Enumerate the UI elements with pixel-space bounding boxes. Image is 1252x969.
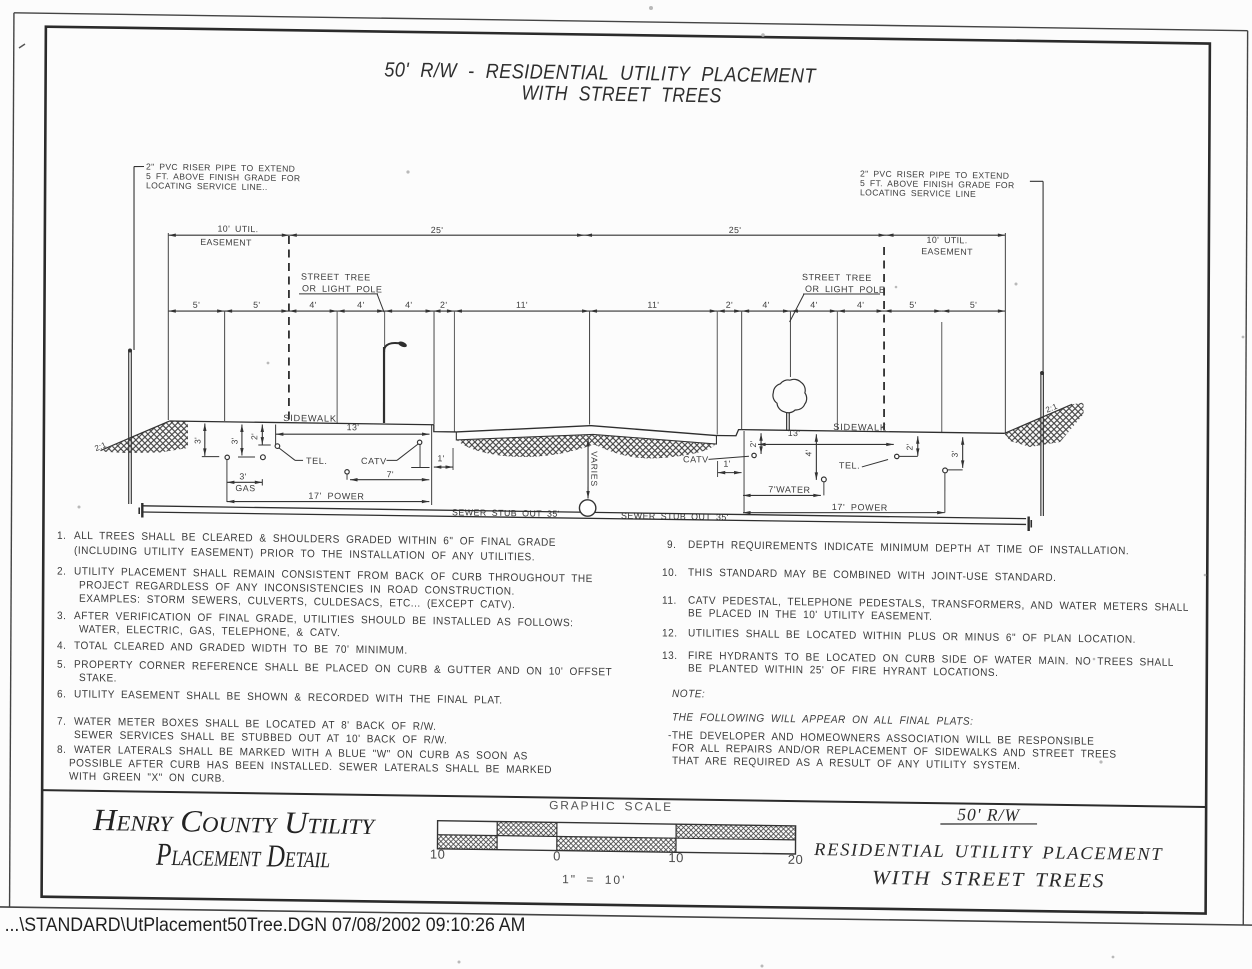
- svg-text:3': 3': [950, 450, 960, 457]
- svg-text:7'WATER: 7'WATER: [768, 484, 810, 495]
- svg-text:12.: 12.: [662, 628, 678, 640]
- svg-text:2.: 2.: [57, 566, 66, 578]
- svg-text:25': 25': [729, 225, 742, 235]
- svg-text:50' R/W: 50' R/W: [957, 804, 1020, 825]
- svg-text:2': 2': [748, 440, 758, 447]
- svg-text:25': 25': [431, 225, 444, 235]
- svg-text:10' UTIL.: 10' UTIL.: [218, 224, 259, 235]
- svg-text:EASEMENT: EASEMENT: [200, 237, 252, 248]
- svg-text:4': 4': [762, 300, 769, 310]
- svg-text:3': 3': [230, 437, 240, 444]
- svg-text:10.: 10.: [662, 567, 678, 579]
- svg-text:1': 1': [437, 453, 444, 463]
- svg-text:WITH STREET TREES: WITH STREET TREES: [521, 82, 721, 107]
- svg-text:13': 13': [788, 428, 801, 438]
- svg-text:4': 4': [309, 300, 316, 310]
- svg-text:13.: 13.: [662, 651, 678, 663]
- svg-text:4': 4': [857, 300, 864, 310]
- svg-text:GAS: GAS: [235, 483, 255, 493]
- svg-text:1': 1': [723, 459, 730, 469]
- svg-text:OR LIGHT POLE: OR LIGHT POLE: [805, 284, 885, 295]
- svg-text:4': 4': [803, 449, 813, 456]
- svg-text:20: 20: [788, 852, 804, 867]
- svg-text:7.: 7.: [57, 716, 66, 728]
- svg-text:10: 10: [668, 850, 684, 865]
- svg-text:VARIES: VARIES: [589, 451, 599, 487]
- svg-text:11.: 11.: [662, 595, 677, 607]
- svg-text:5': 5': [193, 300, 200, 310]
- svg-text:TEL.: TEL.: [306, 456, 327, 466]
- svg-text:5': 5': [909, 300, 916, 310]
- svg-text:1" = 10': 1" = 10': [562, 872, 626, 887]
- svg-text:3': 3': [192, 437, 202, 444]
- svg-text:3.: 3.: [57, 611, 66, 623]
- svg-text:1.: 1.: [57, 531, 66, 543]
- svg-text:CATV: CATV: [683, 454, 709, 464]
- svg-text:STREET TREE: STREET TREE: [802, 272, 872, 283]
- svg-text:5': 5': [253, 300, 260, 310]
- svg-text:6.: 6.: [57, 689, 66, 701]
- svg-text:GRAPHIC SCALE: GRAPHIC SCALE: [549, 798, 673, 814]
- svg-text:LOCATING SERVICE LINE..: LOCATING SERVICE LINE..: [146, 180, 268, 192]
- svg-text:4': 4': [405, 300, 412, 310]
- svg-text:STAKE.: STAKE.: [79, 673, 117, 685]
- svg-text:Placement Detail: Placement Detail: [155, 836, 330, 875]
- svg-text:LOCATING SERVICE LINE: LOCATING SERVICE LINE: [860, 187, 976, 199]
- svg-text:17' POWER: 17' POWER: [832, 502, 888, 513]
- svg-text:17' POWER: 17' POWER: [308, 491, 364, 502]
- svg-text:10' UTIL.: 10' UTIL.: [927, 235, 968, 246]
- svg-text:11': 11': [647, 300, 659, 310]
- svg-text:10: 10: [430, 847, 446, 862]
- svg-text:EASEMENT: EASEMENT: [921, 246, 973, 257]
- svg-text:8.: 8.: [57, 745, 66, 757]
- svg-text:13': 13': [347, 422, 360, 432]
- svg-text:SIDEWALK: SIDEWALK: [833, 422, 887, 433]
- svg-text:7': 7': [387, 469, 394, 479]
- svg-text:OR LIGHT POLE: OR LIGHT POLE: [302, 283, 382, 294]
- svg-text:0: 0: [553, 848, 561, 863]
- svg-text:2': 2': [726, 300, 733, 310]
- svg-text:11': 11': [516, 300, 528, 310]
- svg-text:5.: 5.: [57, 659, 66, 671]
- svg-text:4': 4': [810, 300, 817, 310]
- svg-text:TEL.: TEL.: [839, 460, 860, 470]
- svg-text:2': 2': [905, 443, 915, 450]
- svg-text:SEWER STUB OUT 35': SEWER STUB OUT 35': [452, 507, 560, 519]
- svg-text:9.: 9.: [667, 540, 676, 552]
- svg-text:2': 2': [249, 433, 259, 440]
- svg-text:5': 5': [970, 300, 977, 310]
- svg-text:NOTE:: NOTE:: [672, 689, 705, 701]
- svg-text:3': 3': [239, 471, 246, 481]
- svg-text:4': 4': [357, 300, 364, 310]
- svg-text:Henry County Utility: Henry County Utility: [92, 802, 377, 841]
- svg-text:2': 2': [440, 300, 447, 310]
- svg-text:SIDEWALK: SIDEWALK: [283, 413, 337, 424]
- svg-text:SEWER STUB OUT 35': SEWER STUB OUT 35': [621, 511, 729, 523]
- svg-text:...\STANDARD\UtPlacement50Tree: ...\STANDARD\UtPlacement50Tree.DGN 07/08…: [5, 913, 526, 935]
- svg-text:WITH STREET TREES: WITH STREET TREES: [872, 867, 1105, 892]
- svg-text:CATV: CATV: [361, 456, 387, 466]
- svg-text:STREET TREE: STREET TREE: [301, 272, 371, 283]
- svg-text:4.: 4.: [57, 641, 66, 653]
- svg-text:WITH GREEN "X" ON CURB.: WITH GREEN "X" ON CURB.: [69, 771, 225, 785]
